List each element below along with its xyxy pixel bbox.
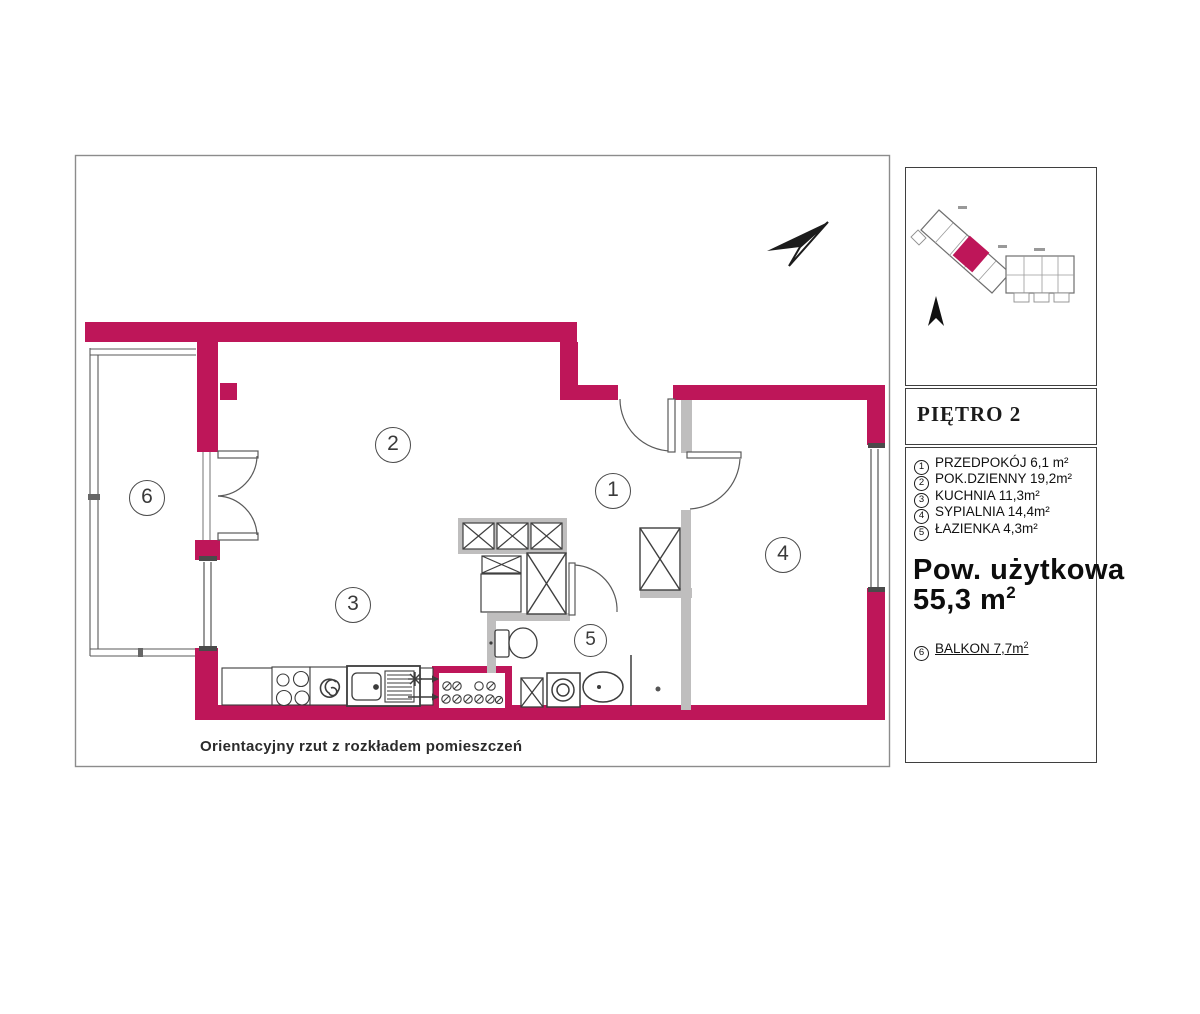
mini-north-arrow-icon xyxy=(928,296,944,326)
legend-label-1: PRZEDPOKÓJ 6,1 m² xyxy=(935,455,1069,470)
washer-xbox xyxy=(521,678,543,707)
plan-caption: Orientacyjny rzut z rozkładem pomieszcze… xyxy=(200,738,522,755)
balcony-text: BALKON 7,7m xyxy=(935,641,1024,656)
legend-num-5: 5 xyxy=(914,526,929,541)
usable-area-number: 55,3 m xyxy=(913,584,1006,616)
floorplan-page: { "colors": { "wall": "#BE1659", "gray_w… xyxy=(0,0,1200,1014)
hood-spiral xyxy=(310,667,347,705)
north-arrow-icon xyxy=(767,222,828,266)
entrance-door xyxy=(620,399,675,452)
bedroom-window xyxy=(868,443,885,592)
legend-room-5: 5ŁAZIENKA 4,3m² xyxy=(914,521,1038,541)
legend-label-4: SYPIALNIA 14,4m² xyxy=(935,504,1050,519)
floor-label: PIĘTRO 2 xyxy=(917,402,1021,427)
sink xyxy=(347,666,420,706)
washing-machine xyxy=(547,673,580,707)
shaft-left xyxy=(527,553,566,614)
bedroom-door xyxy=(687,452,741,509)
bathroom-door xyxy=(569,563,617,615)
small-xbox xyxy=(482,556,521,573)
room-marker-6: 6 xyxy=(129,480,165,516)
door-stop-dot xyxy=(656,687,661,692)
balcony-sup: 2 xyxy=(1024,640,1029,650)
usable-area-value: 55,3 m2 xyxy=(913,584,1016,617)
stove xyxy=(272,667,310,706)
cabinet-xbox xyxy=(463,523,494,549)
location-map-box xyxy=(905,167,1097,386)
room-marker-4: 4 xyxy=(765,537,801,573)
cabinet-xbox xyxy=(497,523,528,549)
cabinet-xbox xyxy=(531,523,562,549)
legend-balcony: 6BALKON 7,7m2 xyxy=(914,641,1029,661)
cabinet-box xyxy=(481,574,521,612)
legend-label-5: ŁAZIENKA 4,3m² xyxy=(935,521,1038,536)
usable-area-sup: 2 xyxy=(1006,583,1016,602)
legend-label-2: POK.DZIENNY 19,2m² xyxy=(935,471,1072,486)
balcony-label: BALKON 7,7m2 xyxy=(935,641,1029,656)
room-marker-2: 2 xyxy=(375,427,411,463)
toilet xyxy=(489,628,537,658)
shaft-right xyxy=(640,528,680,590)
heater-radiator xyxy=(439,673,505,708)
legend-num-6: 6 xyxy=(914,646,929,661)
balcony-doors xyxy=(203,451,258,540)
legend-label-3: KUCHNIA 11,3m² xyxy=(935,488,1040,503)
room-marker-5: 5 xyxy=(574,624,607,657)
usable-area-label: Pow. użytkowa xyxy=(913,554,1125,587)
basin xyxy=(583,672,623,702)
building-overview-map xyxy=(906,168,1096,384)
room-marker-1: 1 xyxy=(595,473,631,509)
kitchen-window xyxy=(199,556,217,651)
room-marker-3: 3 xyxy=(335,587,371,623)
